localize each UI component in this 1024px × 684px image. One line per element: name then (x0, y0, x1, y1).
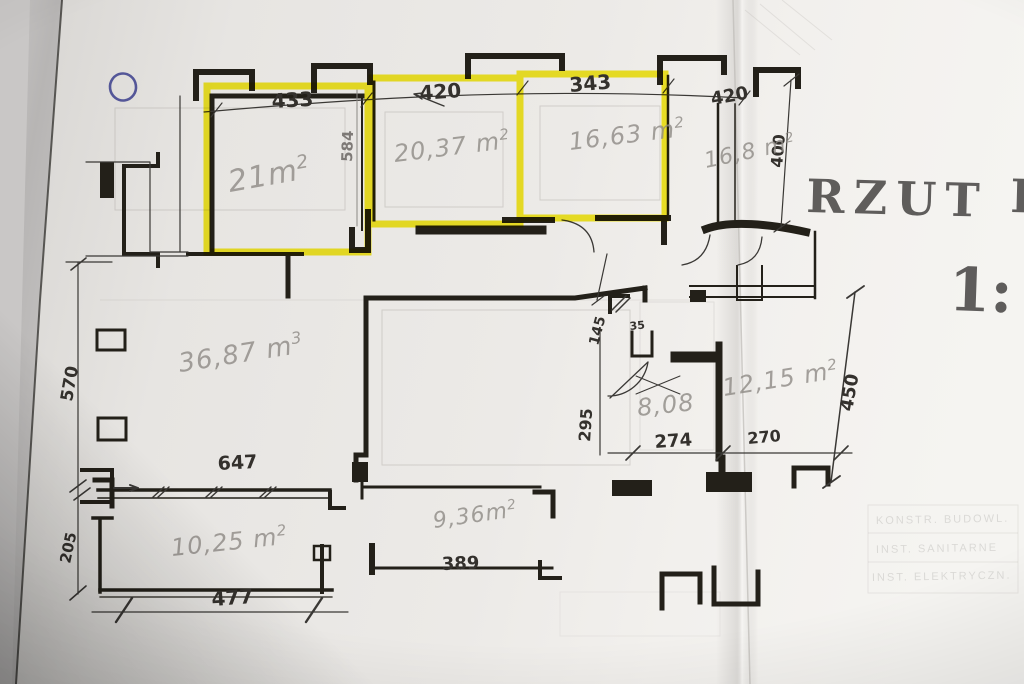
stamp-title: RZUT (806, 169, 990, 228)
dim-label-270: 270 (747, 426, 782, 448)
dim-label-584: 584 (338, 130, 357, 162)
photo-of-floor-plan: 433 420 343 420 584 400 570 205 647 477 … (0, 0, 1024, 684)
wall-block (690, 290, 706, 302)
dim-label-35: 35 (629, 318, 646, 333)
dim-label-295: 295 (575, 408, 596, 443)
dim-label-389: 389 (441, 553, 479, 575)
pier (612, 480, 652, 496)
dim-label-274: 274 (654, 429, 693, 453)
area-label-8-08: 8,08 (636, 388, 696, 422)
dim-label-433: 433 (271, 87, 314, 113)
dim-label-420a: 420 (419, 78, 462, 105)
floor-plan-drawing: 433 420 343 420 584 400 570 205 647 477 … (0, 0, 1024, 684)
faint-row-1: KONSTR. BUDOWL. (876, 513, 1009, 527)
pier (706, 472, 752, 492)
faint-title-block: KONSTR. BUDOWL. INST. SANITARNE INST. EL… (868, 505, 1018, 593)
stamp-scale-prefix: 1: (947, 255, 1013, 327)
dim-label-647: 647 (217, 451, 258, 475)
dim-label-477: 477 (211, 584, 254, 611)
left-pier (100, 162, 114, 198)
dim-label-343: 343 (568, 69, 612, 97)
faint-row-3: INST. ELEKTRYCZN. (872, 570, 1012, 584)
wall-block (352, 462, 368, 482)
stamp-partial-letter: P (1010, 169, 1024, 224)
faint-row-2: INST. SANITARNE (876, 542, 998, 556)
